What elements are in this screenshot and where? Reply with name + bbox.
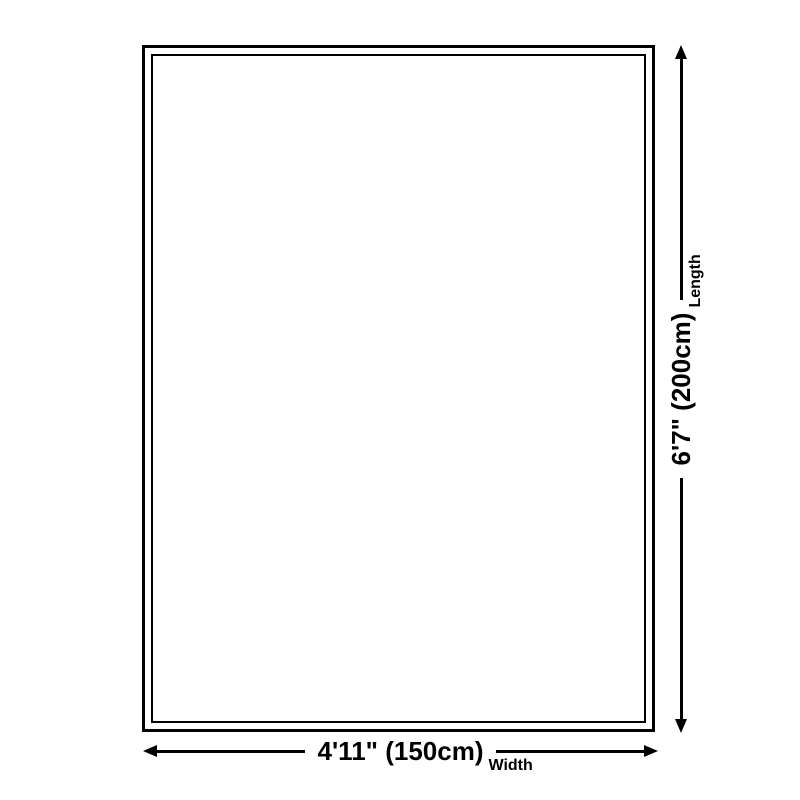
product-outline bbox=[142, 45, 655, 732]
arrow-down-icon bbox=[675, 719, 687, 733]
arrow-right-icon bbox=[644, 745, 658, 757]
size-diagram: 6'7" (200cm) Length 4'11" (150cm) Width bbox=[0, 0, 800, 800]
length-axis-label: Length bbox=[688, 254, 704, 307]
length-arrow-line-lower bbox=[680, 478, 683, 719]
length-dimension-arrow: 6'7" (200cm) Length bbox=[651, 45, 711, 733]
width-value: 4'11" (150cm) bbox=[305, 738, 497, 764]
width-dimension-arrow: 4'11" (150cm) Width bbox=[143, 721, 658, 781]
arrow-left-icon bbox=[143, 745, 157, 757]
width-arrow-line-left bbox=[157, 750, 305, 753]
length-value: 6'7" (200cm) bbox=[668, 300, 694, 479]
width-axis-label: Width bbox=[488, 758, 532, 774]
product-outline-inner-border bbox=[151, 54, 646, 723]
length-arrow-line-upper: Length bbox=[680, 59, 683, 300]
width-arrow-line-right: Width bbox=[496, 750, 644, 753]
arrow-up-icon bbox=[675, 45, 687, 59]
